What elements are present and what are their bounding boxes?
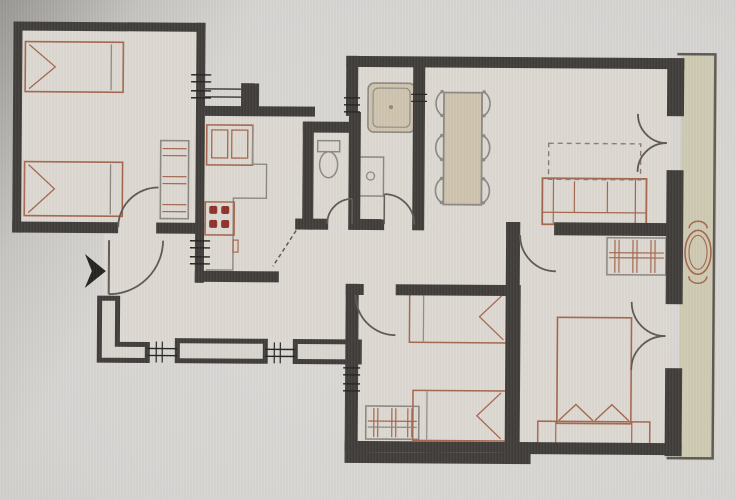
wall [302,122,314,230]
entrance-arrow [85,254,106,288]
wall [412,64,425,230]
wall [667,58,684,116]
wall [195,23,206,283]
wall [295,218,328,229]
wall [666,170,684,304]
bedroom2-floor [351,290,512,447]
floor-plan-svg [0,0,736,500]
chair-arm-dot [440,177,443,180]
wall [554,222,668,236]
balcony-floor [679,54,718,460]
stove-burner [209,206,217,214]
wall [505,285,521,453]
wall [345,452,531,464]
wall [12,222,118,234]
chair-arm-dot [482,114,485,117]
wall [12,22,22,233]
wall [14,22,206,32]
wall [356,219,384,230]
bedroom3-floor [513,231,671,448]
bathroom-shower-drain [389,105,393,109]
wall [345,441,521,453]
wall [195,271,279,283]
hallway-pier [177,341,265,362]
wall [396,284,510,296]
chair-arm-dot [482,158,485,161]
chair-arm-dot [482,177,485,180]
chair-arm-dot [440,158,443,161]
wall [205,106,315,117]
chair-arm-dot [482,201,485,204]
wall [348,112,361,230]
chair-arm-dot [440,90,443,93]
stove-burner [209,220,217,228]
wall [517,442,682,455]
stove-burner [221,206,229,214]
stove-burner [221,220,229,228]
sofa-seat-line [542,212,646,213]
chair-arm-dot [482,90,485,93]
wall [346,284,364,295]
wall [241,83,259,108]
chair-arm-dot [440,114,443,117]
chair-arm-dot [482,134,485,137]
floor-plan [0,0,736,500]
chair-arm-dot [440,134,443,137]
chair-arm-dot [440,201,443,204]
dining-table [443,93,482,205]
wall [506,222,520,288]
floor-plan-photo [0,0,736,500]
wall [346,56,358,116]
wall [665,368,683,456]
